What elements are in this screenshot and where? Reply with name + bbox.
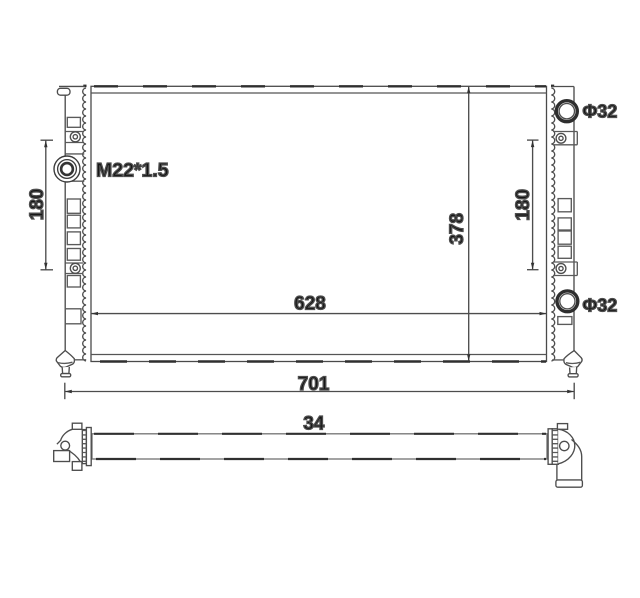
svg-text:701: 701 [298,374,330,395]
svg-text:M22*1.5: M22*1.5 [96,160,169,182]
svg-text:Φ32: Φ32 [583,295,618,315]
svg-text:Φ32: Φ32 [583,102,618,122]
svg-text:180: 180 [513,189,534,221]
svg-text:628: 628 [294,294,326,315]
svg-text:180: 180 [27,189,48,221]
svg-text:378: 378 [447,213,468,245]
svg-text:34: 34 [303,414,325,435]
